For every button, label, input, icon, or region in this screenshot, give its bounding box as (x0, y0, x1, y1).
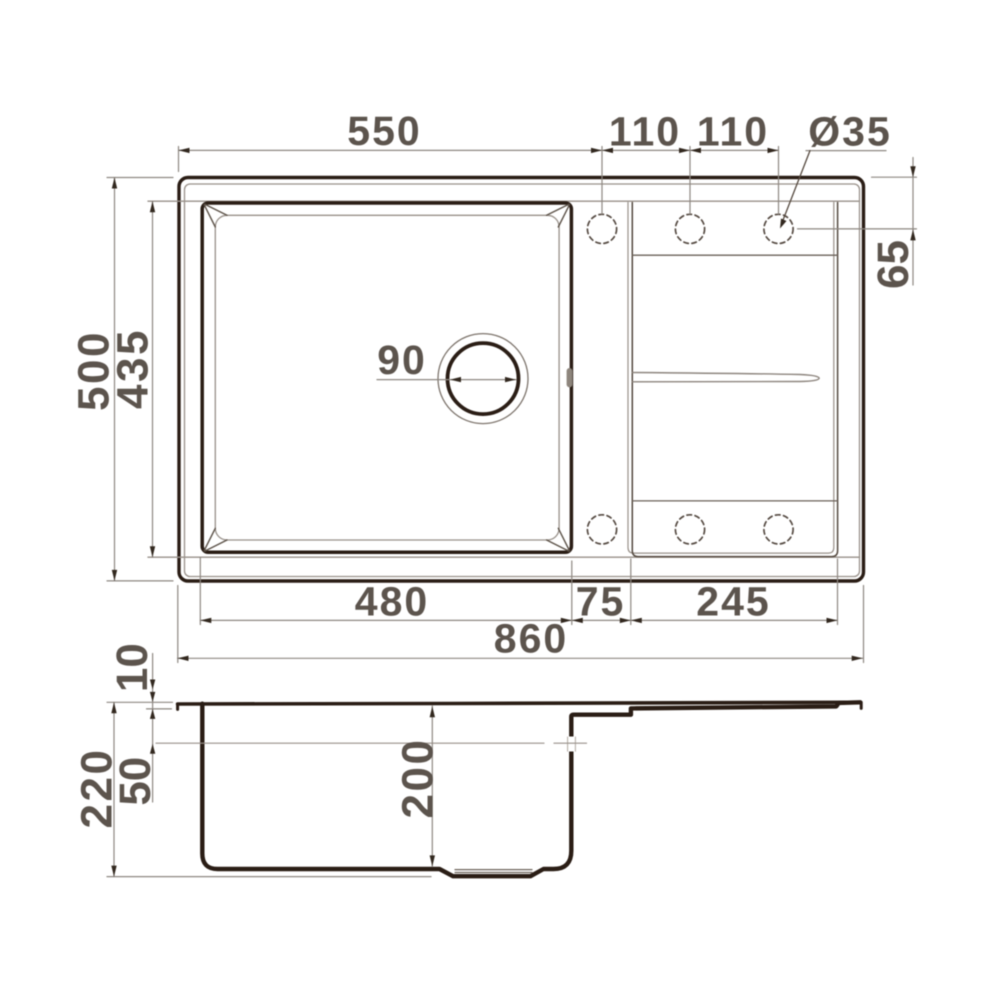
svg-text:110: 110 (609, 108, 681, 154)
svg-text:Ø35: Ø35 (808, 109, 892, 155)
svg-text:860: 860 (494, 616, 568, 662)
svg-text:75: 75 (576, 579, 626, 625)
svg-text:90: 90 (377, 337, 427, 383)
svg-text:245: 245 (696, 579, 770, 625)
svg-text:200: 200 (394, 738, 443, 819)
svg-text:110: 110 (697, 108, 769, 154)
svg-text:480: 480 (355, 579, 429, 625)
svg-text:435: 435 (109, 328, 158, 409)
svg-text:10: 10 (108, 643, 157, 692)
svg-text:550: 550 (347, 108, 421, 154)
svg-text:65: 65 (869, 240, 918, 289)
svg-text:50: 50 (111, 757, 160, 806)
